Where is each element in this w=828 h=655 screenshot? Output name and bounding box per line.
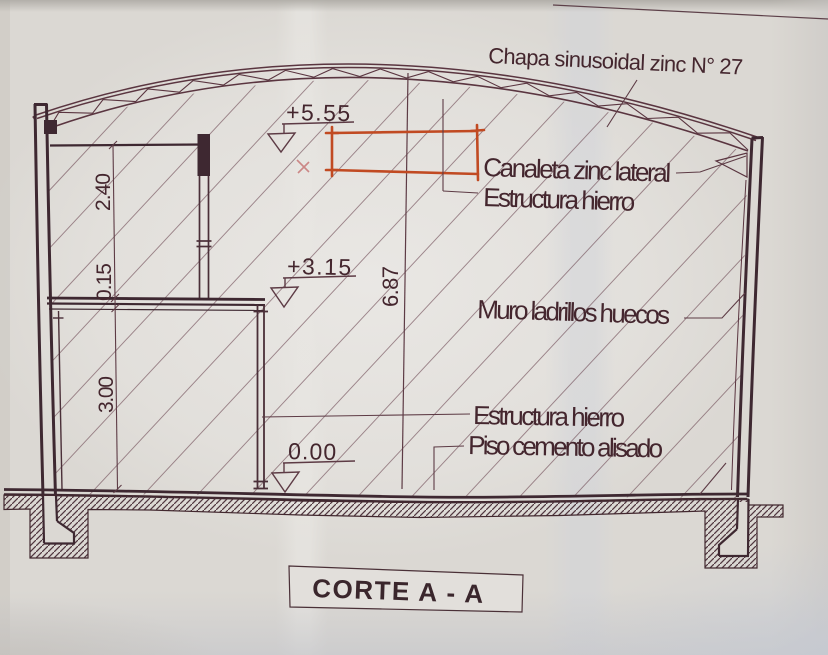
svg-text:2.40: 2.40	[92, 173, 115, 211]
svg-text:Estructura hierro: Estructura hierro	[473, 400, 626, 433]
svg-text:6.87: 6.87	[378, 266, 403, 307]
svg-text:Muro ladrillos huecos: Muro ladrillos huecos	[477, 294, 671, 330]
svg-text:Piso cemento alisado: Piso cemento alisado	[468, 430, 663, 463]
svg-text:Estructura hierro: Estructura hierro	[483, 182, 636, 217]
svg-text:+5.55: +5.55	[286, 99, 350, 126]
svg-text:+3.15: +3.15	[287, 253, 351, 280]
svg-text:3.00: 3.00	[95, 376, 118, 413]
svg-text:0.15: 0.15	[93, 263, 116, 301]
svg-text:0.00: 0.00	[288, 438, 336, 465]
svg-text:CORTE A - A: CORTE A - A	[312, 573, 484, 609]
